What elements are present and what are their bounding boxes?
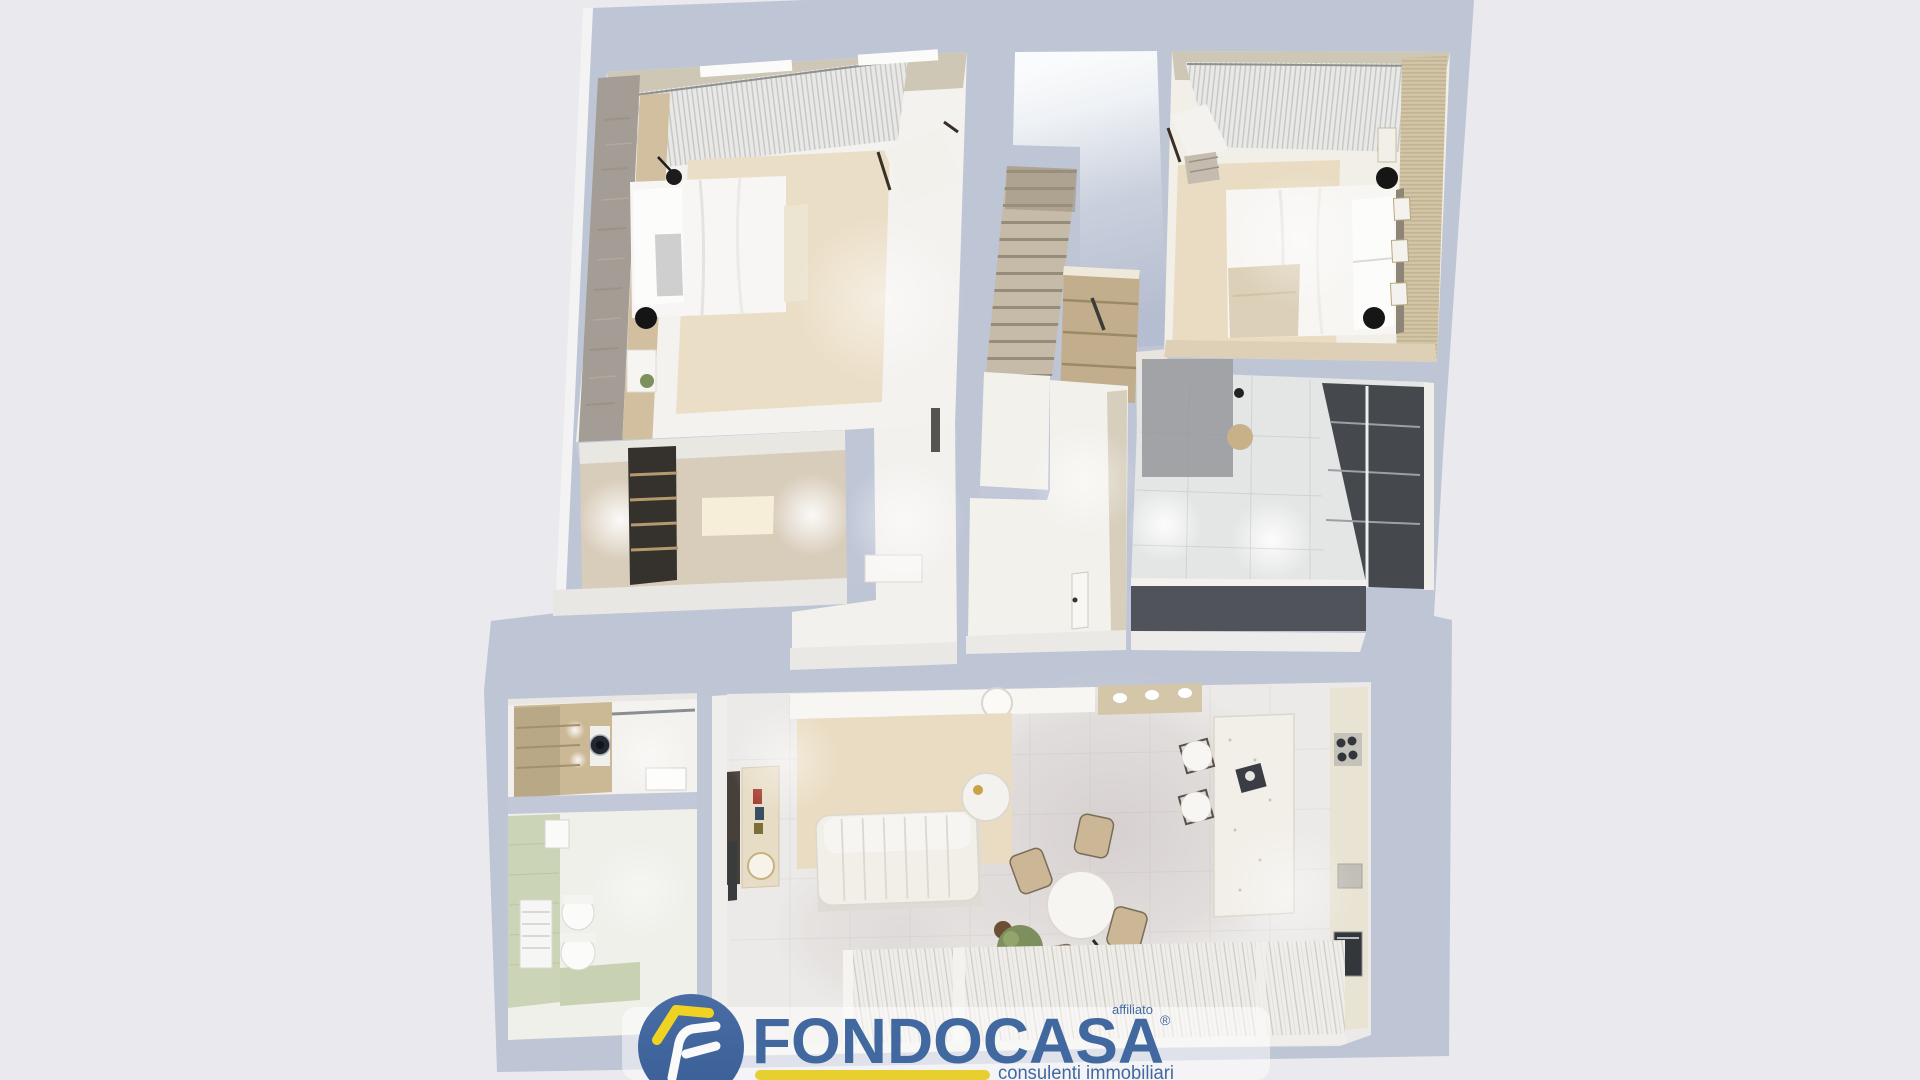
svg-text:consulenti immobiliari: consulenti immobiliari [998, 1063, 1174, 1080]
svg-text:affiliato: affiliato [1112, 1002, 1153, 1017]
svg-text:®: ® [1160, 1012, 1171, 1028]
